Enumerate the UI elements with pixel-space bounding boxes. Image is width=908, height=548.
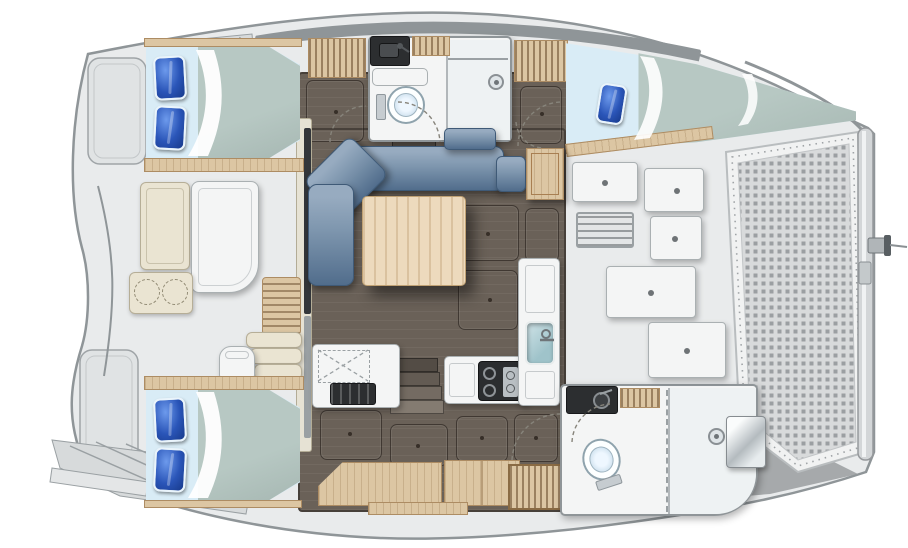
panel-dot <box>540 112 544 116</box>
aft-cabin-top-trim <box>144 38 302 47</box>
helm-chair <box>219 346 255 380</box>
teak-slatted-bench <box>262 277 301 335</box>
head-top <box>368 36 512 142</box>
shower-top <box>446 40 510 140</box>
dashed-seat-circle <box>162 279 188 305</box>
shower-dashed-partition <box>666 390 668 512</box>
forward-bench <box>444 128 496 150</box>
sliding-door-lower-track <box>304 316 311 438</box>
aft-cabin-bottom-shelf <box>144 376 304 390</box>
galley-oven-grill <box>330 383 376 405</box>
panel-dot <box>488 298 492 302</box>
catamaran-floorplan <box>0 0 908 548</box>
hatch-latch <box>672 236 678 242</box>
nav-seat <box>496 156 526 192</box>
vanity-counter-black <box>370 36 410 66</box>
cooktop <box>478 361 522 401</box>
wood-step-strip <box>368 502 468 515</box>
bed-pillow <box>153 397 187 443</box>
panel-dot <box>348 432 352 436</box>
sofa-arm-vertical <box>308 184 354 286</box>
forward-crossbeam <box>858 128 907 460</box>
louvered-vent <box>576 212 634 248</box>
shower-drain <box>708 428 725 445</box>
beam-cleat <box>859 262 871 284</box>
toilet-bottom <box>573 432 635 496</box>
hatch-latch <box>684 348 690 354</box>
bed-pillow <box>153 447 187 493</box>
panel-dot <box>416 444 420 448</box>
galley-island <box>444 356 528 404</box>
chrome-deck-locker <box>726 416 766 468</box>
head-slat-counter <box>620 388 660 408</box>
louvered-locker <box>508 464 564 510</box>
galley-counter-column <box>518 258 560 406</box>
floor-panel <box>525 208 559 262</box>
shower-rail <box>448 58 508 60</box>
aft-cabin-bottom-trim <box>144 500 302 508</box>
slat-locker-aft <box>308 38 366 78</box>
icebox-dashed <box>318 350 370 383</box>
bed-aft-bottom-duvet <box>198 390 300 500</box>
nav-chart-cabinet <box>526 148 564 200</box>
panel-dot <box>534 436 538 440</box>
hatch-latch <box>602 180 608 186</box>
toilet-top <box>376 86 426 126</box>
cockpit-seat-cabinet <box>129 272 193 314</box>
shower-drain <box>488 74 504 90</box>
head-counter <box>372 68 428 86</box>
wood-berth-a <box>318 462 442 506</box>
panel-dot <box>334 110 338 114</box>
cockpit-table <box>191 181 259 293</box>
bed-pillow <box>153 55 187 101</box>
slat-locker-fwd <box>514 40 568 82</box>
hatch-latch <box>674 188 680 194</box>
bed-pillow <box>153 105 187 151</box>
head-slat-shelf <box>412 36 450 56</box>
bed-aft-top-duvet <box>198 47 300 158</box>
panel-dot <box>486 232 490 236</box>
forestay-line <box>890 245 907 247</box>
dashed-seat-circle <box>134 279 160 305</box>
vanity-counter-black <box>566 386 618 414</box>
salon-table <box>362 196 466 286</box>
panel-dot <box>480 436 484 440</box>
galley-sink <box>525 321 555 365</box>
aft-cabin-top-shelf <box>144 158 304 172</box>
hatch-latch <box>648 290 654 296</box>
cockpit-bench-seat <box>140 182 190 270</box>
